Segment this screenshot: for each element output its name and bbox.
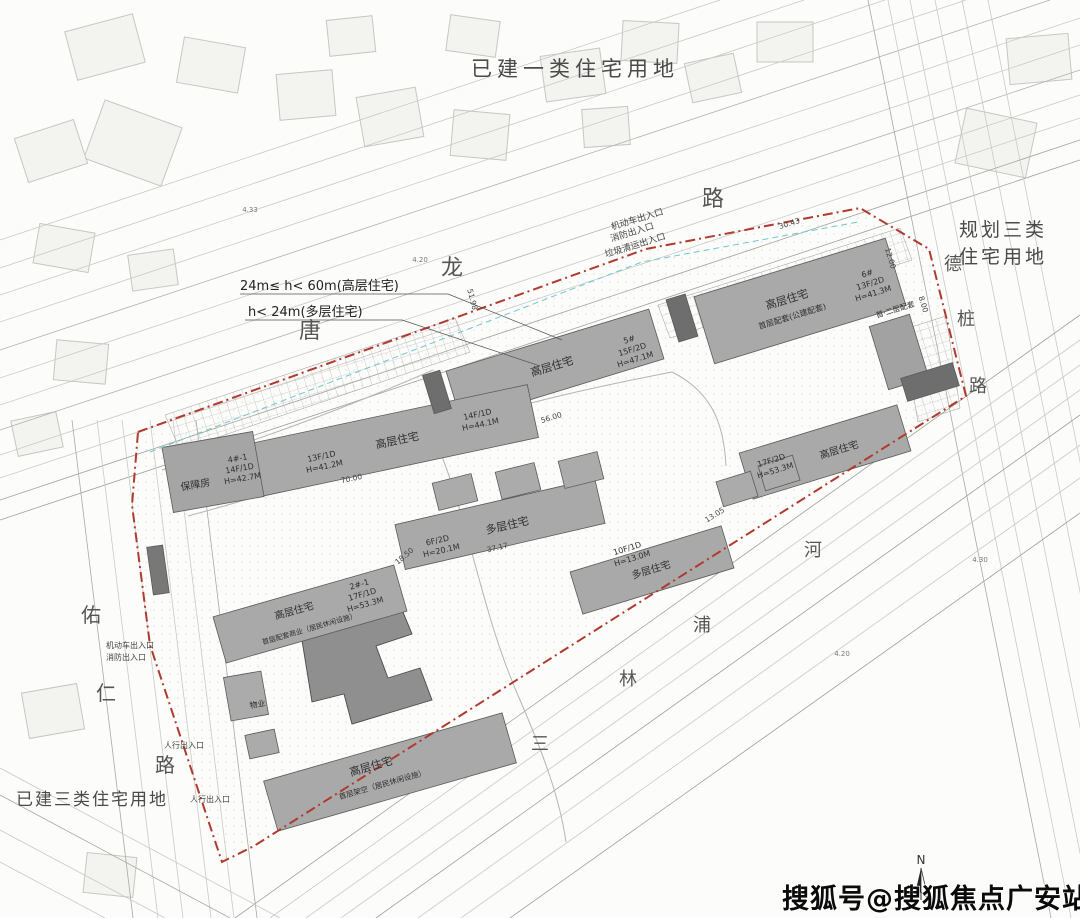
site-plan-canvas: 已建一类住宅用地规划三类住宅用地已建三类住宅用地 唐龙路德桩路佑仁路三林浦河 2… (0, 0, 1080, 918)
land-use-label: 规划三类 (959, 219, 1047, 241)
road-name-char: 三 (531, 734, 549, 755)
land-use-label: 已建一类住宅用地 (471, 57, 679, 81)
watermark-text: 搜狐号@搜狐焦点广安站 (782, 883, 1080, 915)
entrance-label: 人行出入口 (190, 794, 230, 804)
height-zone-note: h< 24m(多层住宅) (248, 304, 363, 320)
road-name-char: 路 (702, 187, 724, 212)
spot-elevation: 4.33 (242, 206, 258, 214)
site-plan: 已建一类住宅用地规划三类住宅用地已建三类住宅用地 唐龙路德桩路佑仁路三林浦河 2… (0, 0, 1080, 918)
entrance-label: 人行出入口 (164, 740, 204, 750)
land-use-label: 已建三类住宅用地 (16, 790, 168, 810)
road-name-char: 路 (969, 376, 987, 397)
spot-elevation: 4.30 (972, 556, 988, 564)
road-name-char: 德 (944, 254, 962, 275)
height-zone-note: 24m≤ h< 60m(高层住宅) (240, 278, 399, 294)
north-label: N (917, 853, 926, 867)
road-name-char: 林 (619, 669, 637, 690)
road-name-char: 浦 (693, 615, 711, 636)
road-name-char: 路 (155, 753, 175, 777)
road-name-char: 佑 (81, 603, 101, 627)
building-block (223, 671, 268, 721)
road-name-char: 仁 (96, 681, 116, 705)
spot-elevation: 4.20 (412, 256, 428, 264)
road-name-char: 龙 (441, 256, 463, 281)
road-name-char: 桩 (957, 309, 975, 330)
road-name-char: 唐 (299, 319, 321, 344)
road-name-char: 河 (804, 540, 822, 561)
entrance-label: 消防出入口 (106, 652, 146, 662)
land-use-label: 住宅用地 (959, 246, 1047, 268)
entrance-label: 机动车出入口 (106, 640, 154, 650)
spot-elevation: 4.20 (834, 650, 850, 658)
